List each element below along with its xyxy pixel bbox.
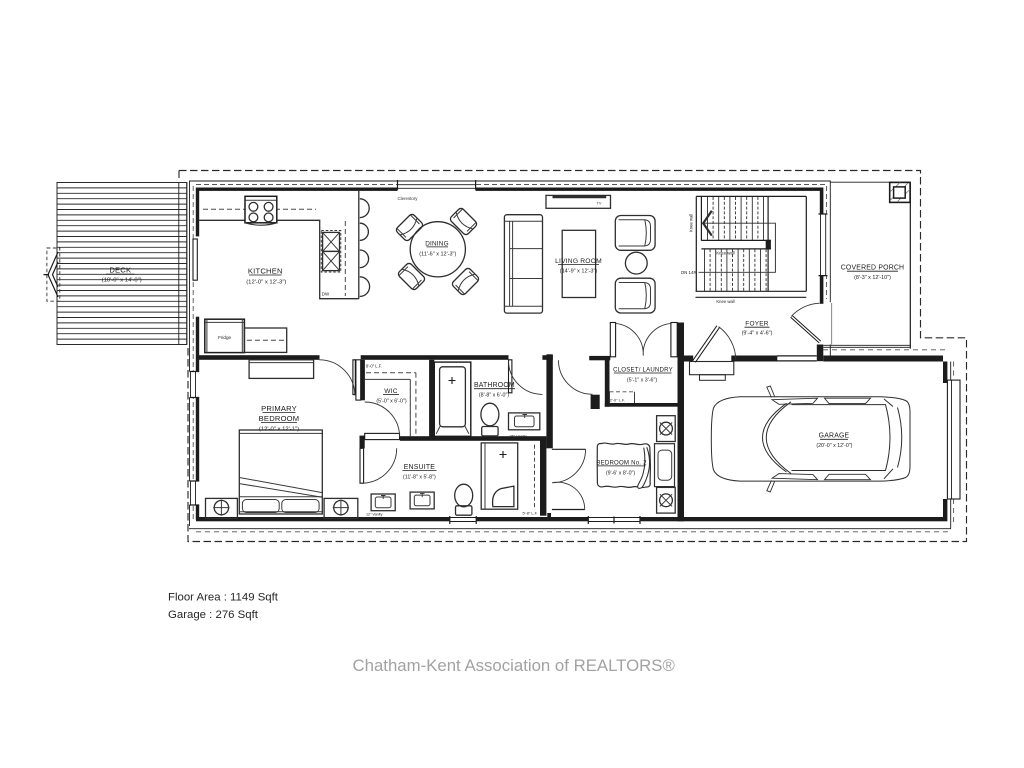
svg-text:(12'-0" x 12'-1"): (12'-0" x 12'-1") bbox=[259, 427, 299, 433]
svg-text:(5'-1" x 3'-6"): (5'-1" x 3'-6") bbox=[627, 378, 657, 384]
svg-text:(5'-0" x 6'-0"): (5'-0" x 6'-0") bbox=[376, 398, 406, 404]
svg-text:DW: DW bbox=[322, 292, 330, 297]
svg-text:Clerestory: Clerestory bbox=[398, 196, 419, 201]
svg-text:DECK: DECK bbox=[109, 266, 131, 275]
svg-text:DN 14R: DN 14R bbox=[681, 270, 697, 275]
svg-text:KITCHEN: KITCHEN bbox=[248, 266, 283, 275]
svg-text:(11'-6" x 12'-3"): (11'-6" x 12'-3") bbox=[419, 251, 456, 257]
svg-text:BEDROOM No. 2: BEDROOM No. 2 bbox=[596, 459, 647, 466]
svg-text:BATHROOM: BATHROOM bbox=[474, 382, 515, 389]
svg-text:(10'-0" x 14'-0"): (10'-0" x 14'-0") bbox=[102, 278, 142, 284]
svg-text:COVERED PORCH: COVERED PORCH bbox=[841, 265, 904, 272]
svg-text:12" Vanity: 12" Vanity bbox=[366, 512, 383, 516]
svg-text:FOYER: FOYER bbox=[745, 321, 768, 328]
svg-text:Knee wall: Knee wall bbox=[716, 251, 734, 256]
svg-text:(9'-6' x 8'-0"): (9'-6' x 8'-0") bbox=[606, 470, 636, 476]
svg-text:GARAGE: GARAGE bbox=[819, 433, 850, 440]
svg-text:CLOSET/ LAUNDRY: CLOSET/ LAUNDRY bbox=[613, 367, 673, 374]
svg-text:Knee wall: Knee wall bbox=[689, 214, 694, 232]
svg-text:DINING: DINING bbox=[425, 240, 449, 247]
svg-text:(11'-8" x 5'-8"): (11'-8" x 5'-8") bbox=[403, 474, 436, 480]
svg-text:TV: TV bbox=[597, 202, 602, 206]
svg-text:ENSUITE: ENSUITE bbox=[404, 464, 435, 471]
svg-text:2'-0" L.F.: 2'-0" L.F. bbox=[610, 398, 625, 403]
svg-text:PRIMARY: PRIMARY bbox=[261, 404, 297, 413]
svg-text:Chatham-Kent Association of RE: Chatham-Kent Association of REALTORS® bbox=[353, 656, 676, 675]
svg-text:Garage : 276 Sqft: Garage : 276 Sqft bbox=[168, 609, 259, 621]
svg-text:(8'-3" x 12'-10"): (8'-3" x 12'-10") bbox=[854, 275, 891, 281]
svg-text:Fridge: Fridge bbox=[218, 335, 231, 340]
svg-text:5'-8" L.F.: 5'-8" L.F. bbox=[523, 511, 538, 516]
svg-text:Floor Area : 1149 Sqft: Floor Area : 1149 Sqft bbox=[168, 592, 279, 604]
svg-text:8'-0" L.F.: 8'-0" L.F. bbox=[366, 363, 382, 368]
svg-text:(12'-0" x 12'-3"): (12'-0" x 12'-3") bbox=[246, 279, 286, 285]
svg-text:(14'-9" x 12'-3"): (14'-9" x 12'-3") bbox=[560, 268, 598, 274]
svg-text:WIC: WIC bbox=[384, 388, 397, 395]
svg-text:(9'-4" x 4'-6"): (9'-4" x 4'-6") bbox=[742, 331, 773, 337]
svg-text:LIVING ROOM: LIVING ROOM bbox=[555, 258, 602, 265]
svg-text:Knee wall: Knee wall bbox=[716, 299, 734, 304]
svg-text:BEDROOM: BEDROOM bbox=[259, 414, 300, 423]
svg-text:(20'-0" x 12'-0"): (20'-0" x 12'-0") bbox=[816, 443, 852, 449]
svg-text:(8'-8" x 6'-0"): (8'-8" x 6'-0") bbox=[479, 393, 509, 399]
svg-text:36" Vanity: 36" Vanity bbox=[510, 433, 527, 438]
